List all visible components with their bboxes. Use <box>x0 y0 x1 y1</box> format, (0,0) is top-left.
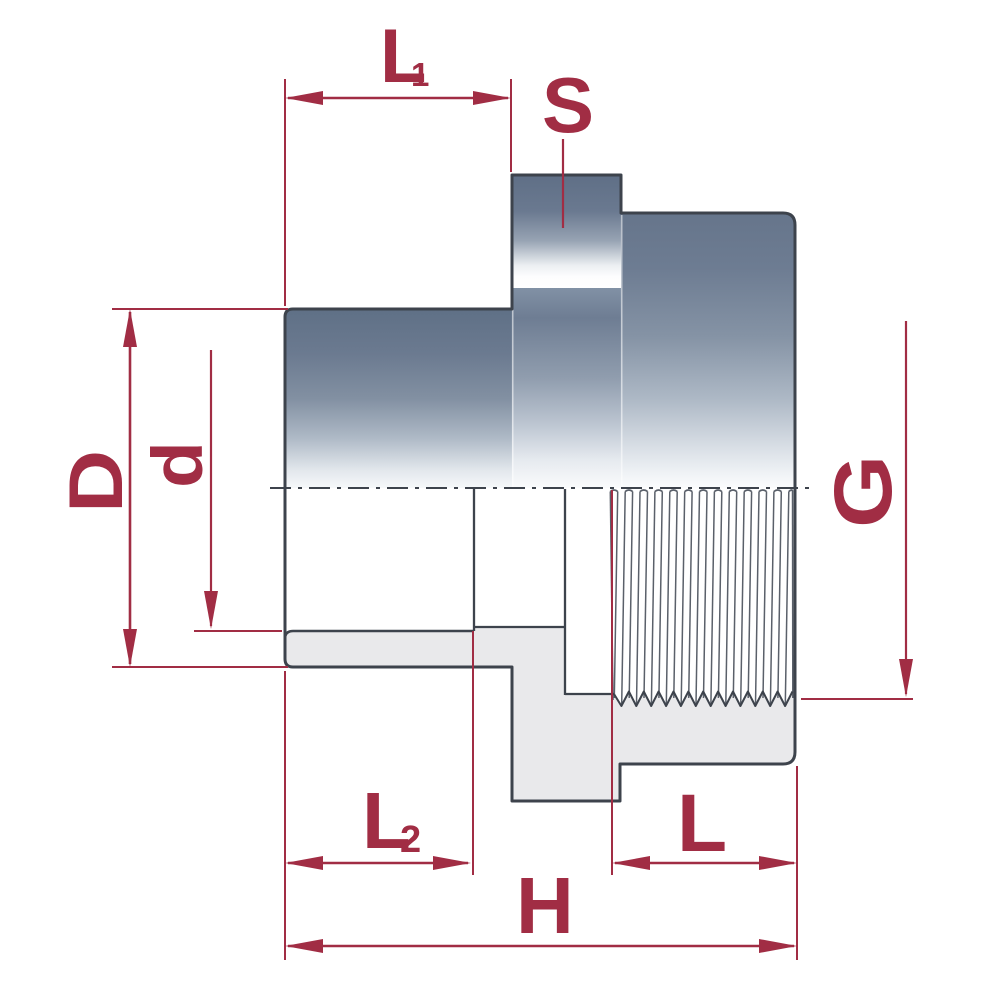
svg-text:L: L <box>677 778 727 869</box>
svg-text:2: 2 <box>400 819 421 861</box>
svg-text:d: d <box>138 441 218 488</box>
svg-text:1: 1 <box>411 56 429 93</box>
svg-text:D: D <box>54 450 138 513</box>
svg-text:G: G <box>817 455 909 528</box>
svg-text:H: H <box>516 861 574 950</box>
svg-text:S: S <box>542 61 594 149</box>
